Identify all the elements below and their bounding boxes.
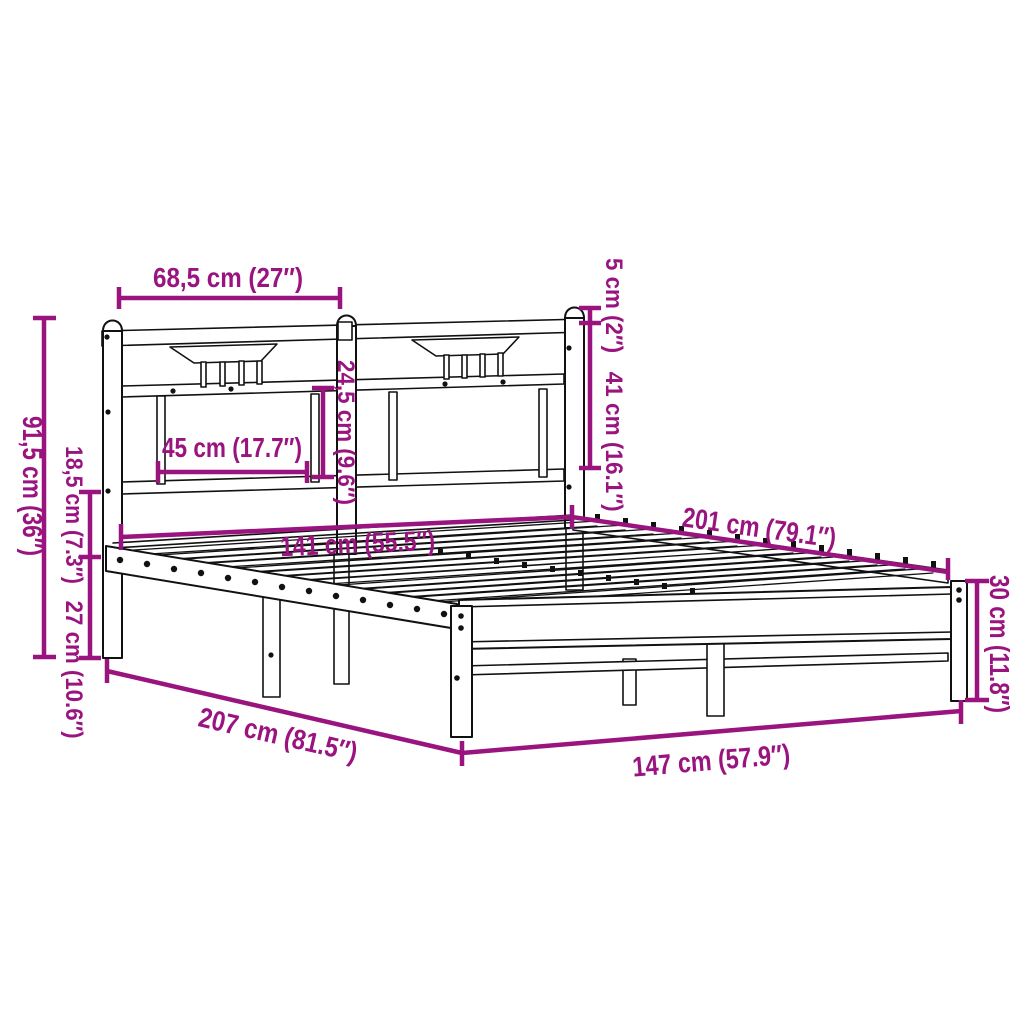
dim-label-upper-height: 41 cm (16.1″) — [600, 372, 627, 512]
foot-end — [451, 581, 967, 737]
dim-label-clearance-and-platform: 18,5 cm (7.3″) 27 cm (10.6″) — [60, 446, 87, 739]
dim-label-inner-width: 141 cm (55.5″) — [280, 525, 436, 562]
dimension-diagram: 68,5 cm (27″) 91,5 cm (36″) 18,5 cm (7.3… — [0, 0, 1024, 1024]
bed-frame-diagram-svg: 68,5 cm (27″) 91,5 cm (36″) 18,5 cm (7.3… — [0, 0, 1024, 1024]
dim-label-outer-width: 147 cm (57.9″) — [631, 738, 791, 782]
dim-label-frame-height: 30 cm (11.8″) — [984, 575, 1015, 713]
dim-label-panel-height: 24,5 cm (9.6″) — [332, 360, 359, 505]
dim-label-headboard-height: 91,5 cm (36″) — [17, 416, 48, 556]
dim-label-headboard-section-width: 68,5 cm (27″) — [153, 262, 303, 293]
dim-label-post-top-height: 5 cm (2″) — [600, 258, 627, 353]
dim-label-under-bed-clearance: 18,5 cm (7.3″) — [60, 446, 87, 584]
dim-label-platform-height: 27 cm (10.6″) — [60, 601, 87, 739]
dim-label-post-and-upper: 5 cm (2″) 41 cm (16.1″) — [600, 258, 627, 512]
dim-label-panel-width: 45 cm (17.7″) — [162, 432, 302, 463]
